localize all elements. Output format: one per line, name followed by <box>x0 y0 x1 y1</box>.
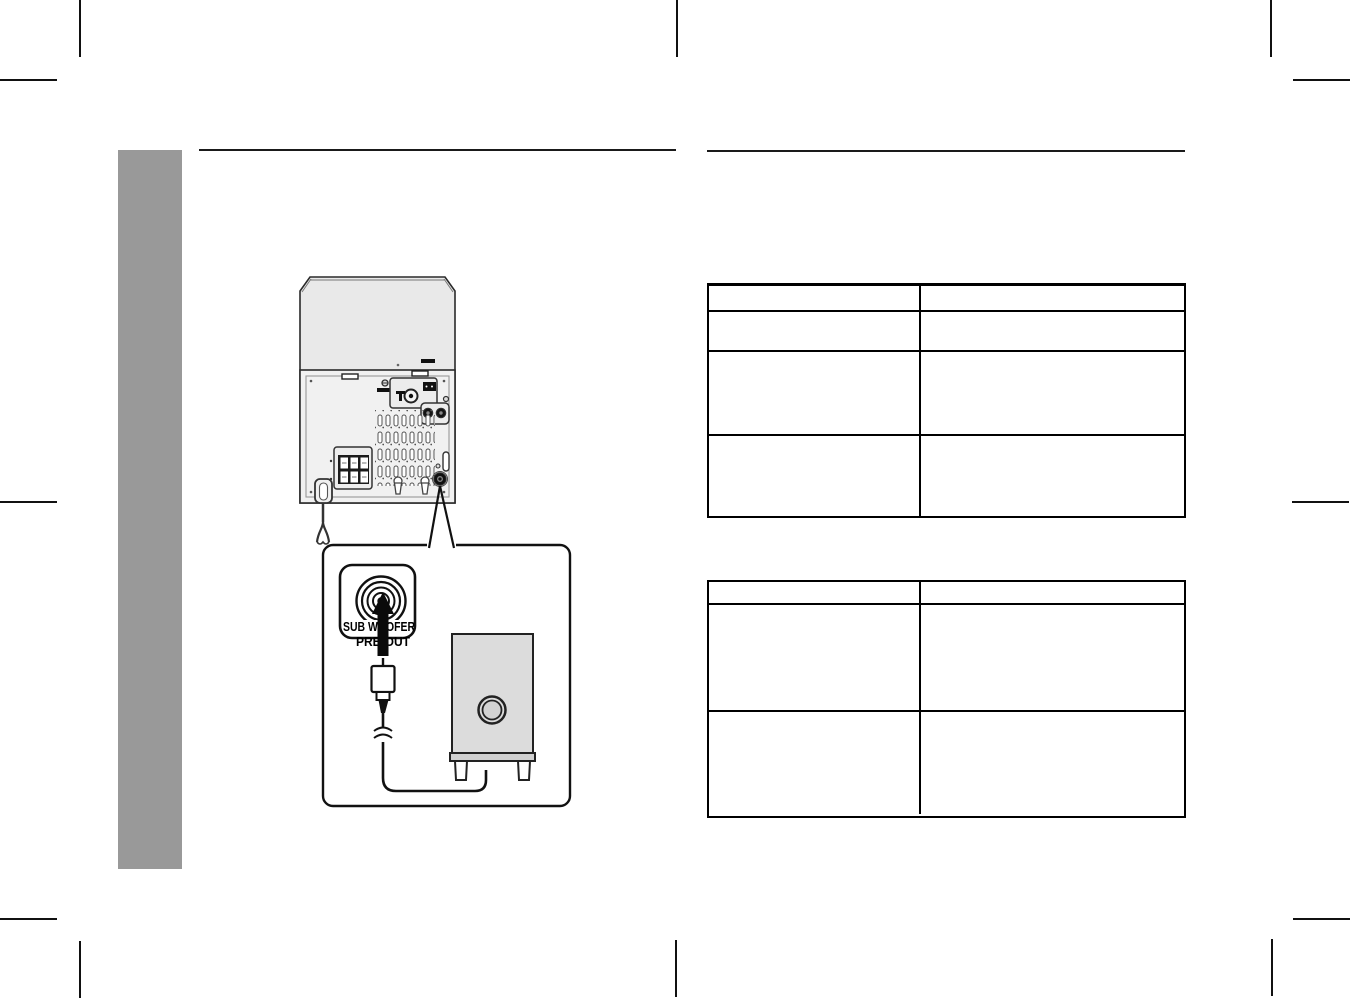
vent-slot-field <box>375 410 435 486</box>
table-row <box>709 712 1184 814</box>
table-cell <box>709 352 921 434</box>
table-cell <box>921 712 1184 814</box>
table-cell <box>921 605 1184 710</box>
crop-mark-right-bottom-h <box>1293 918 1350 920</box>
table-row <box>709 286 1184 312</box>
table-row <box>709 582 1184 605</box>
chapter-sidebar-band <box>118 150 182 869</box>
table-row <box>709 352 1184 436</box>
table-cell <box>709 582 921 603</box>
crop-mark-top-mid-v <box>676 0 678 57</box>
speaker-terminal-block <box>330 447 372 489</box>
crop-mark-left-bottom-h <box>0 918 57 920</box>
table-2 <box>707 580 1186 818</box>
table-row <box>709 436 1184 518</box>
crop-mark-left-mid-h <box>0 501 57 503</box>
table-cell <box>709 712 921 814</box>
table-cell <box>921 286 1184 310</box>
table-row <box>709 312 1184 352</box>
subwoofer-connection-diagram: SUB WOOFER PRE-OUT <box>280 260 600 820</box>
table-cell <box>709 312 921 350</box>
table-row <box>709 605 1184 712</box>
table-cell <box>921 352 1184 434</box>
crop-mark-right-mid-h <box>1292 501 1349 503</box>
stereo-rear-panel <box>300 277 455 544</box>
crop-mark-left-top-h <box>0 79 57 81</box>
crop-mark-top-left-v <box>79 0 81 57</box>
table-cell <box>921 312 1184 350</box>
right-column-rule <box>707 150 1185 152</box>
table-1 <box>707 283 1186 518</box>
table-cell <box>921 582 1184 603</box>
crop-mark-bottom-right-v <box>1271 939 1273 996</box>
crop-mark-right-top-h <box>1293 79 1350 81</box>
table-cell <box>709 436 921 518</box>
manual-page: SUB WOOFER PRE-OUT <box>0 0 1350 998</box>
crop-mark-top-right-v <box>1270 0 1272 57</box>
top-vent-dash <box>421 359 435 363</box>
power-cord <box>315 479 332 544</box>
table-cell <box>709 286 921 310</box>
crop-mark-bottom-mid-v <box>675 940 677 997</box>
crop-mark-bottom-left-v <box>79 941 81 998</box>
subwoofer-speaker <box>450 634 535 780</box>
table-cell <box>921 436 1184 518</box>
table-cell <box>709 605 921 710</box>
callout-box: SUB WOOFER PRE-OUT <box>323 486 570 806</box>
left-column-rule <box>199 149 676 151</box>
